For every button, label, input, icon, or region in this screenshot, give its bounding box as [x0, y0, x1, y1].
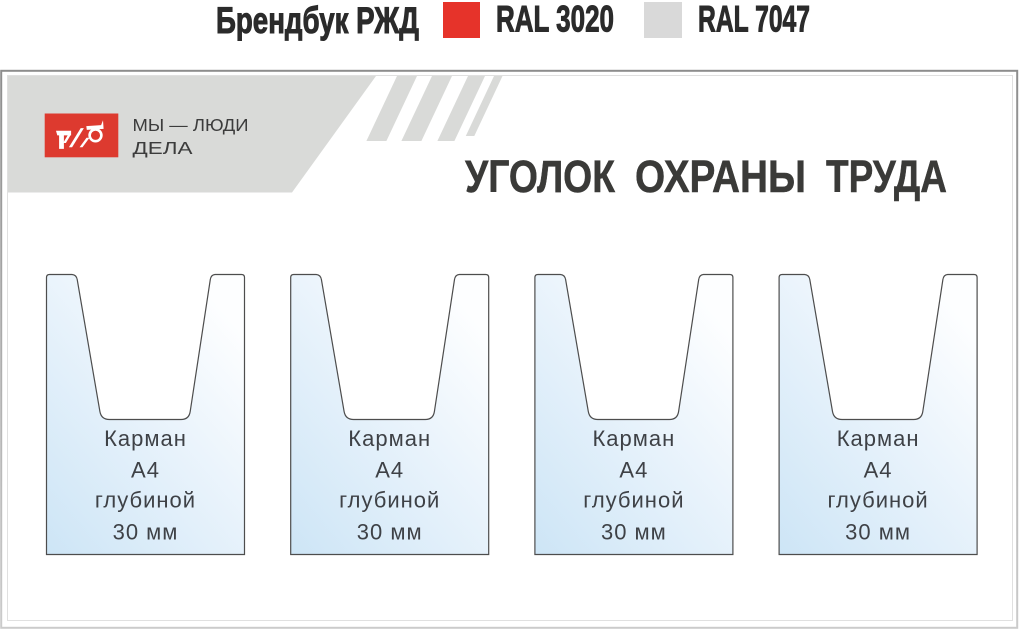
svg-text:Брендбук РЖД: Брендбук РЖД	[216, 0, 419, 41]
svg-text:RAL 3020: RAL 3020	[496, 0, 614, 40]
svg-text:ОХРАНЫ: ОХРАНЫ	[635, 151, 806, 202]
svg-text:А4: А4	[131, 458, 160, 483]
svg-text:МЫ — ЛЮДИ: МЫ — ЛЮДИ	[133, 115, 249, 135]
svg-text:глубиной: глубиной	[95, 488, 196, 513]
svg-text:ДЕЛА: ДЕЛА	[133, 138, 193, 158]
svg-text:глубиной: глубиной	[827, 488, 928, 513]
svg-text:Карман: Карман	[348, 426, 431, 451]
svg-text:RAL 7047: RAL 7047	[698, 0, 810, 40]
svg-text:глубиной: глубиной	[339, 488, 440, 513]
svg-text:30 мм: 30 мм	[601, 520, 667, 545]
svg-text:ТРУДА: ТРУДА	[826, 151, 947, 202]
svg-text:Карман: Карман	[837, 426, 920, 451]
svg-text:Карман: Карман	[593, 426, 676, 451]
svg-text:УГОЛОК: УГОЛОК	[465, 151, 615, 202]
svg-text:30 мм: 30 мм	[845, 520, 911, 545]
svg-text:30 мм: 30 мм	[357, 520, 423, 545]
svg-text:А4: А4	[375, 458, 404, 483]
svg-text:А4: А4	[864, 458, 893, 483]
svg-text:А4: А4	[619, 458, 648, 483]
svg-text:30 мм: 30 мм	[113, 520, 179, 545]
svg-text:глубиной: глубиной	[583, 488, 684, 513]
svg-text:Карман: Карман	[104, 426, 187, 451]
